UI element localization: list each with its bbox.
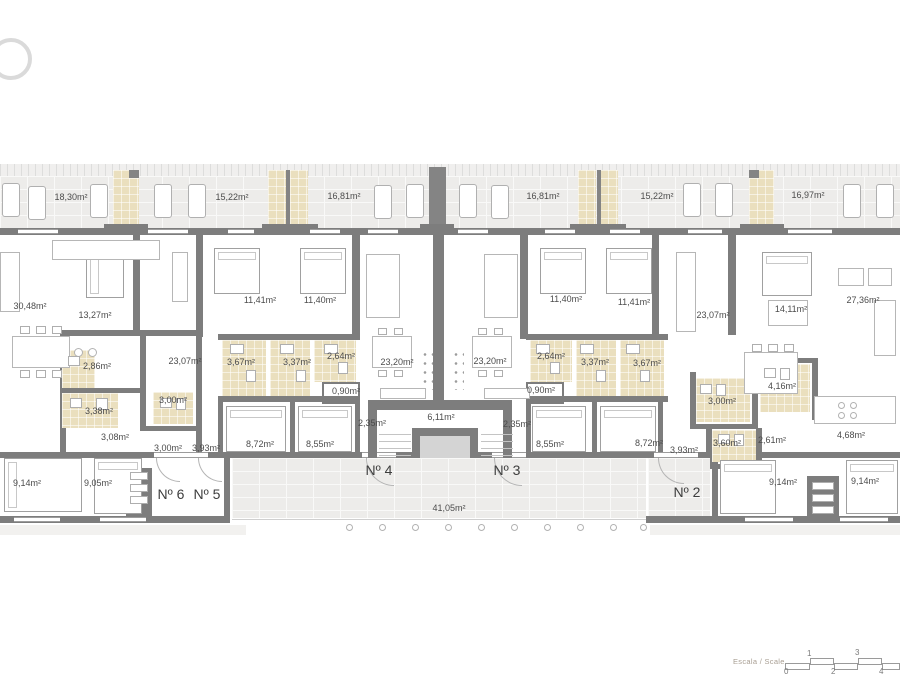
area-label: 23,07m² (168, 356, 201, 366)
chair (784, 344, 794, 352)
closet-slot (130, 472, 148, 480)
bed (720, 460, 776, 514)
lounger (90, 184, 108, 218)
chair (378, 328, 387, 335)
lounger (843, 184, 861, 218)
area-label: 3,37m² (283, 357, 311, 367)
scale-tick: 4 (879, 667, 883, 675)
stair-tread (481, 441, 513, 442)
area-label: 9,05m² (84, 478, 112, 488)
stair-tread (481, 434, 513, 435)
fridge-column (874, 300, 896, 356)
area-label: 16,81m² (327, 191, 360, 201)
window (545, 229, 575, 234)
bed (846, 460, 898, 514)
chair (494, 328, 503, 335)
terrace-divider (749, 170, 774, 229)
wall (690, 424, 758, 429)
stair-tread (379, 434, 411, 435)
paving-strip (0, 525, 246, 535)
wall (104, 224, 148, 235)
window (228, 229, 254, 234)
kitchen-counter (814, 396, 896, 424)
planter (610, 524, 617, 531)
area-label: 3,38m² (85, 406, 113, 416)
wall (140, 336, 146, 428)
paving-strip (650, 525, 900, 535)
planter (544, 524, 551, 531)
sofa (676, 252, 696, 332)
unit-label: Nº 2 (674, 484, 701, 500)
area-label: 2,35m² (503, 419, 531, 429)
window (14, 517, 60, 522)
area-label: 9,14m² (851, 476, 879, 486)
planter (511, 524, 518, 531)
window (458, 229, 488, 234)
planter (577, 524, 584, 531)
scale-tick: 1 (807, 649, 811, 658)
wall (520, 235, 528, 339)
chair (88, 348, 97, 357)
wall (290, 402, 295, 455)
area-label: 16,97m² (791, 190, 824, 200)
area-label: 16,81m² (526, 191, 559, 201)
chair (768, 344, 778, 352)
sofa (52, 240, 160, 260)
area-label: 14,11m² (775, 304, 807, 314)
area-label: 6,11m² (427, 412, 454, 422)
area-label: 4,16m² (768, 381, 796, 391)
chair (478, 370, 487, 377)
area-label: 23,20m² (380, 357, 413, 367)
terrace-divider (578, 170, 596, 229)
area-label: 8,55m² (536, 439, 564, 449)
lounger (876, 184, 894, 218)
closet-slot (130, 496, 148, 504)
area-label: 3,93m² (670, 445, 698, 455)
bed (214, 248, 260, 294)
terrace-edge (232, 519, 646, 520)
area-label: 2,35m² (358, 418, 386, 428)
lounger (406, 184, 424, 218)
area-label: 3,67m² (633, 358, 661, 368)
planter (478, 524, 485, 531)
wall (140, 426, 202, 431)
stair-tread (379, 448, 411, 449)
area-label: 3,00m² (154, 443, 182, 453)
closet-slot (130, 484, 148, 492)
stair-tread (379, 441, 411, 442)
area-label: 2,86m² (83, 361, 111, 371)
area-label: 15,22m² (640, 191, 673, 201)
hob-burner (850, 402, 857, 409)
kitchen-counter (484, 388, 530, 399)
chair (20, 326, 30, 334)
chair (36, 326, 46, 334)
wall (352, 235, 360, 339)
area-label: 3,60m² (713, 438, 741, 448)
hob-burner (838, 402, 845, 409)
dining-table (12, 336, 70, 368)
chair (494, 370, 503, 377)
window (368, 229, 398, 234)
area-label: 23,07m² (696, 310, 729, 320)
lounger (2, 183, 20, 217)
lounger (374, 185, 392, 219)
door-arc (198, 458, 222, 482)
area-label: 2,61m² (758, 435, 786, 445)
hob-burner (838, 412, 845, 419)
lounger (154, 184, 172, 218)
stair-core-top (429, 167, 446, 231)
lounger (188, 184, 206, 218)
window (688, 229, 722, 234)
chair (20, 370, 30, 378)
kitchen-counter (380, 388, 426, 399)
area-label: 3,00m² (159, 395, 187, 405)
scale-bar-label: Escala / Scale (733, 657, 785, 666)
chair (378, 370, 387, 377)
bed (300, 248, 346, 294)
divider-cap (286, 170, 290, 229)
lounger (715, 183, 733, 217)
planter (412, 524, 419, 531)
wall (355, 402, 360, 455)
sink (280, 344, 294, 354)
kitchen-appliances (452, 350, 464, 390)
wall (740, 224, 784, 235)
logo-ring-icon (0, 38, 32, 80)
hob-burner (850, 412, 857, 419)
scale-tick: 0 (784, 667, 788, 675)
lounger (683, 183, 701, 217)
area-label: 3,93m² (192, 443, 220, 453)
closet-slot (812, 482, 834, 490)
wall (60, 330, 201, 336)
divider-cap (597, 170, 601, 229)
toilet (640, 370, 650, 382)
wall (224, 452, 230, 523)
planter (346, 524, 353, 531)
area-label: 3,67m² (227, 357, 255, 367)
area-label: 11,41m² (618, 297, 650, 307)
area-label: 11,40m² (550, 294, 582, 304)
terrace-divider (600, 170, 618, 229)
area-label: 30,48m² (13, 301, 46, 311)
scale-bar-segment (834, 663, 858, 670)
window (148, 229, 188, 234)
stair-tread (481, 455, 513, 456)
table (868, 268, 892, 286)
closet-slot (812, 506, 834, 514)
stair-tread (379, 455, 411, 456)
lounger (28, 186, 46, 220)
wall (368, 400, 512, 410)
wall (652, 235, 659, 337)
lounger (491, 185, 509, 219)
area-label: 11,41m² (244, 295, 276, 305)
terrace-divider (268, 170, 286, 229)
area-label: 8,55m² (306, 439, 334, 449)
wall (728, 235, 736, 335)
area-label: 3,37m² (581, 357, 609, 367)
chair (394, 370, 403, 377)
window (310, 229, 340, 234)
chair (752, 344, 762, 352)
area-label: 27,36m² (846, 295, 879, 305)
wall (196, 235, 203, 337)
scale-tick: 3 (855, 648, 859, 657)
area-label: 11,40m² (304, 295, 336, 305)
wall (712, 452, 718, 523)
toilet (550, 362, 560, 374)
area-label: 41,05m² (432, 503, 465, 513)
area-label: 13,27m² (78, 310, 111, 320)
chair (478, 328, 487, 335)
area-label: 2,64m² (327, 351, 355, 361)
toilet (596, 370, 606, 382)
bed (606, 248, 652, 294)
area-label: 4,68m² (837, 430, 865, 440)
sink (230, 344, 244, 354)
floor-plan-canvas: 18,30m² 15,22m² 16,81m² 16,81m² 15,22m² … (0, 0, 900, 675)
sink (700, 384, 712, 394)
area-label: 23,20m² (473, 356, 506, 366)
sink (764, 368, 776, 378)
toilet (716, 384, 726, 396)
table (838, 268, 864, 286)
unit-label: Nº 3 (494, 462, 521, 478)
area-label: 9,14m² (13, 478, 41, 488)
area-label: 9,14m² (769, 477, 797, 487)
unit-label: Nº 5 (194, 486, 221, 502)
planter (379, 524, 386, 531)
area-label: 0,90m² (527, 385, 555, 395)
wall (196, 337, 202, 454)
sink (68, 356, 80, 366)
planter (445, 524, 452, 531)
area-label: 15,22m² (215, 192, 248, 202)
sofa (366, 254, 400, 318)
toilet (296, 370, 306, 382)
chair (36, 370, 46, 378)
toilet (70, 398, 82, 408)
window (610, 229, 640, 234)
window (788, 229, 832, 234)
toilet (338, 362, 348, 374)
stair-tread (481, 448, 513, 449)
wall (433, 235, 444, 405)
unit-label: Nº 6 (158, 486, 185, 502)
window (18, 229, 58, 234)
lounger (459, 184, 477, 218)
terrace-divider (113, 170, 139, 229)
scale-bar-segment (858, 658, 882, 665)
divider-cap (129, 170, 139, 178)
area-label: 3,08m² (101, 432, 129, 442)
area-label: 8,72m² (246, 439, 274, 449)
scale-tick: 2 (831, 667, 835, 675)
window (745, 517, 793, 522)
planter (640, 524, 647, 531)
chair (52, 370, 62, 378)
unit-label: Nº 4 (366, 462, 393, 478)
terrace-divider (290, 170, 308, 229)
closet-slot (812, 494, 834, 502)
toilet (246, 370, 256, 382)
wardrobe (172, 252, 188, 302)
wall (420, 224, 454, 235)
chair (52, 326, 62, 334)
sofa (484, 254, 518, 318)
sink (580, 344, 594, 354)
bed (762, 252, 812, 296)
sink (626, 344, 640, 354)
scale-bar-segment (810, 658, 834, 665)
wall (592, 402, 597, 455)
toilet (780, 368, 790, 380)
area-label: 18,30m² (54, 192, 87, 202)
area-label: 2,64m² (537, 351, 565, 361)
window (100, 517, 146, 522)
scale-bar-segment (882, 663, 900, 670)
area-label: 3,00m² (708, 396, 736, 406)
bed (540, 248, 586, 294)
door-arc (156, 458, 180, 482)
bathroom-floor (222, 340, 266, 396)
area-label: 0,90m² (332, 386, 360, 396)
window (840, 517, 888, 522)
divider-cap (749, 170, 759, 178)
chair (394, 328, 403, 335)
scale-bar-segment (785, 663, 810, 670)
area-label: 8,72m² (635, 438, 663, 448)
kitchen-appliances (421, 350, 433, 390)
